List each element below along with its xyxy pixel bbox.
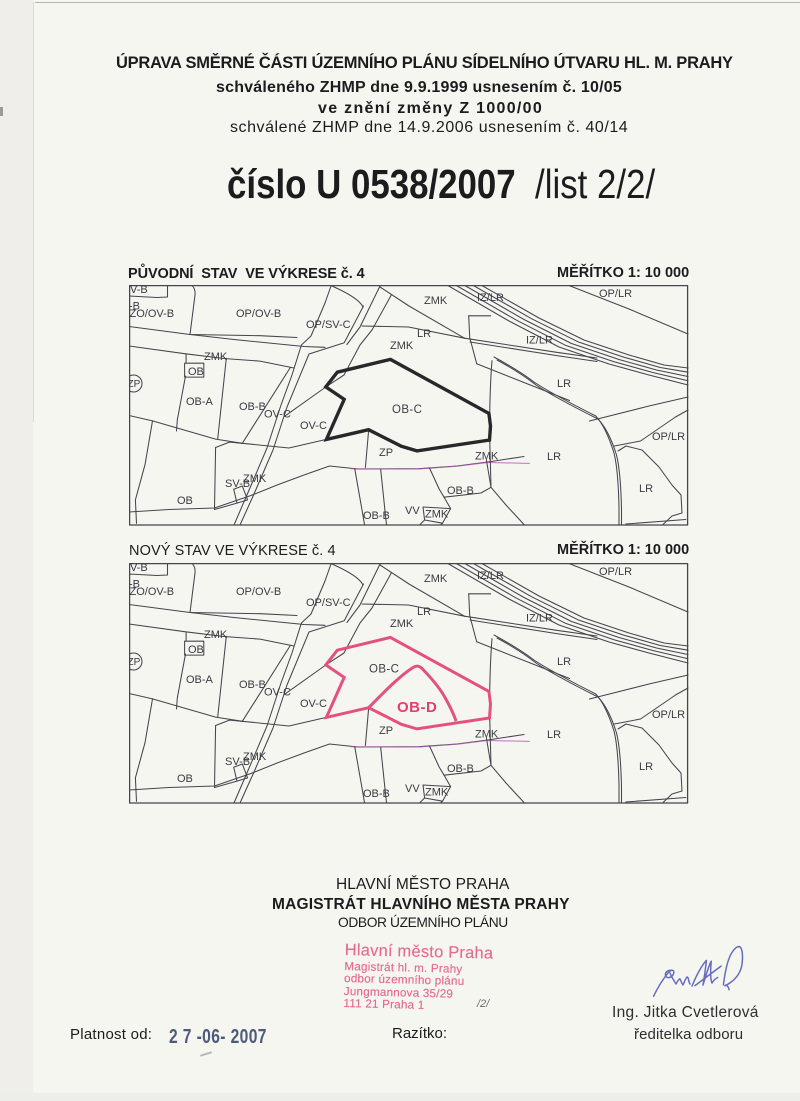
svg-text:OB-C: OB-C [392,404,422,416]
svg-text:OB-C: OB-C [369,664,399,676]
svg-text:OB-D: OB-D [397,699,437,716]
